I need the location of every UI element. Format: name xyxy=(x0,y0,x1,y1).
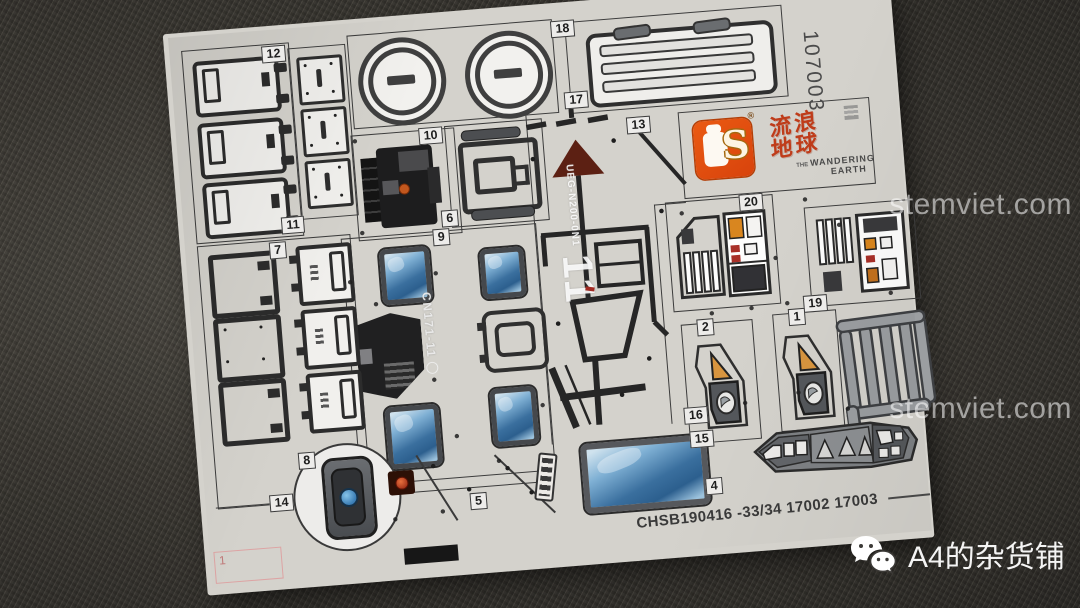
section-tag-5: 5 xyxy=(469,492,487,510)
bracket-decal xyxy=(213,314,286,383)
stencil-big-number: 11 xyxy=(557,253,601,306)
section-tag-17: 17 xyxy=(564,91,589,110)
blue-window-decal xyxy=(384,404,443,470)
plate-decal xyxy=(296,54,346,106)
part-number: 107003 xyxy=(798,30,829,114)
section-tag-6: 6 xyxy=(441,209,459,227)
section-tag-10: 10 xyxy=(418,126,443,145)
slot-connector-decal xyxy=(305,370,366,434)
door-outline-decal xyxy=(481,307,550,374)
connector-decal xyxy=(197,117,287,180)
black-registration-block xyxy=(404,544,459,564)
section-tag-18: 18 xyxy=(550,19,575,38)
handle-grip-decal xyxy=(320,455,378,541)
bracket-frame-decal xyxy=(457,137,543,215)
region-outline-2 xyxy=(681,319,762,444)
bracket-decal xyxy=(218,378,291,447)
wechat-watermark: A4的杂货铺 xyxy=(850,532,1065,576)
plate-decal xyxy=(304,158,354,210)
section-tag-2: 2 xyxy=(696,318,714,336)
corner-page-mark: 1 xyxy=(213,547,283,584)
engine-decal xyxy=(359,138,450,234)
brand-letter: S xyxy=(720,124,751,166)
red-button-decal xyxy=(387,470,415,496)
grille-decal xyxy=(585,19,778,108)
region-outline-20 xyxy=(665,194,781,312)
movie-logo-cn: 流浪地球 xyxy=(769,108,829,162)
emblem-ring-icon xyxy=(426,361,439,374)
section-tag-13: 13 xyxy=(626,116,651,135)
section-tag-20: 20 xyxy=(738,193,763,212)
slot-connector-decal xyxy=(295,242,356,306)
section-tag-1: 1 xyxy=(788,308,806,326)
photo-scene: 12 11 18 17 13 10 6 9 7 8 14 5 16 15 4 2… xyxy=(0,0,1080,608)
stencil-code-text: UEG-N200-0N1 xyxy=(564,164,582,247)
stencil-marking: UEG-N200-0N1 11 xyxy=(549,163,600,307)
footer-dash-line xyxy=(888,493,930,499)
section-tag-9: 9 xyxy=(432,228,450,246)
blue-window-decal xyxy=(489,386,540,448)
section-tag-19: 19 xyxy=(803,294,828,313)
watermark-site-middle: stemviet.com xyxy=(889,392,1072,426)
striped-chip-decal xyxy=(534,452,557,502)
section-tag-12: 12 xyxy=(261,45,286,64)
bracket-decal xyxy=(208,250,281,319)
movie-logo-the: THE xyxy=(796,162,808,169)
section-tag-15: 15 xyxy=(689,430,714,449)
blue-window-decal xyxy=(479,246,527,299)
wechat-icon xyxy=(850,534,898,574)
connector-decal xyxy=(192,55,282,118)
region-outline-1 xyxy=(772,309,845,432)
decal-sheet: 12 11 18 17 13 10 6 9 7 8 14 5 16 15 4 2… xyxy=(168,0,932,588)
section-tag-11: 11 xyxy=(281,216,306,235)
brand-logo: S ® xyxy=(692,118,754,180)
movie-logo-caption-marks xyxy=(844,105,859,120)
section-tag-8: 8 xyxy=(298,452,316,470)
connector-decal xyxy=(202,177,292,240)
slot-connector-decal xyxy=(300,306,361,370)
plate-decal xyxy=(300,106,350,158)
wechat-channel-name: A4的杂货铺 xyxy=(908,532,1065,576)
registered-mark: ® xyxy=(747,110,754,121)
section-tag-7: 7 xyxy=(269,241,287,259)
section-tag-16: 16 xyxy=(683,406,708,425)
section-tag-4: 4 xyxy=(705,477,723,495)
watermark-site-top: stemviet.com xyxy=(889,188,1072,222)
section-tag-14: 14 xyxy=(269,493,294,512)
